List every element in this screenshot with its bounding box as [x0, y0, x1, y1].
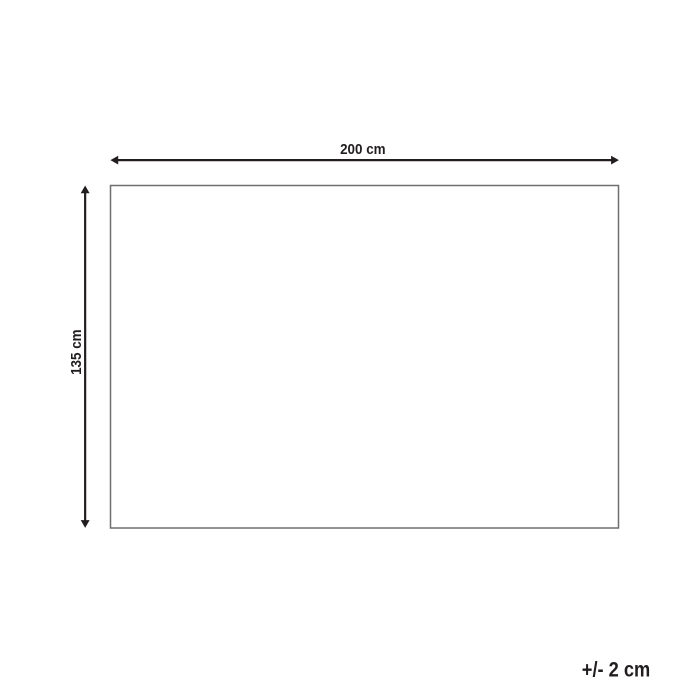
- svg-text:+/- 2 cm: +/- 2 cm: [582, 659, 651, 682]
- svg-text:135 cm: 135 cm: [68, 329, 85, 375]
- svg-text:200 cm: 200 cm: [340, 141, 386, 158]
